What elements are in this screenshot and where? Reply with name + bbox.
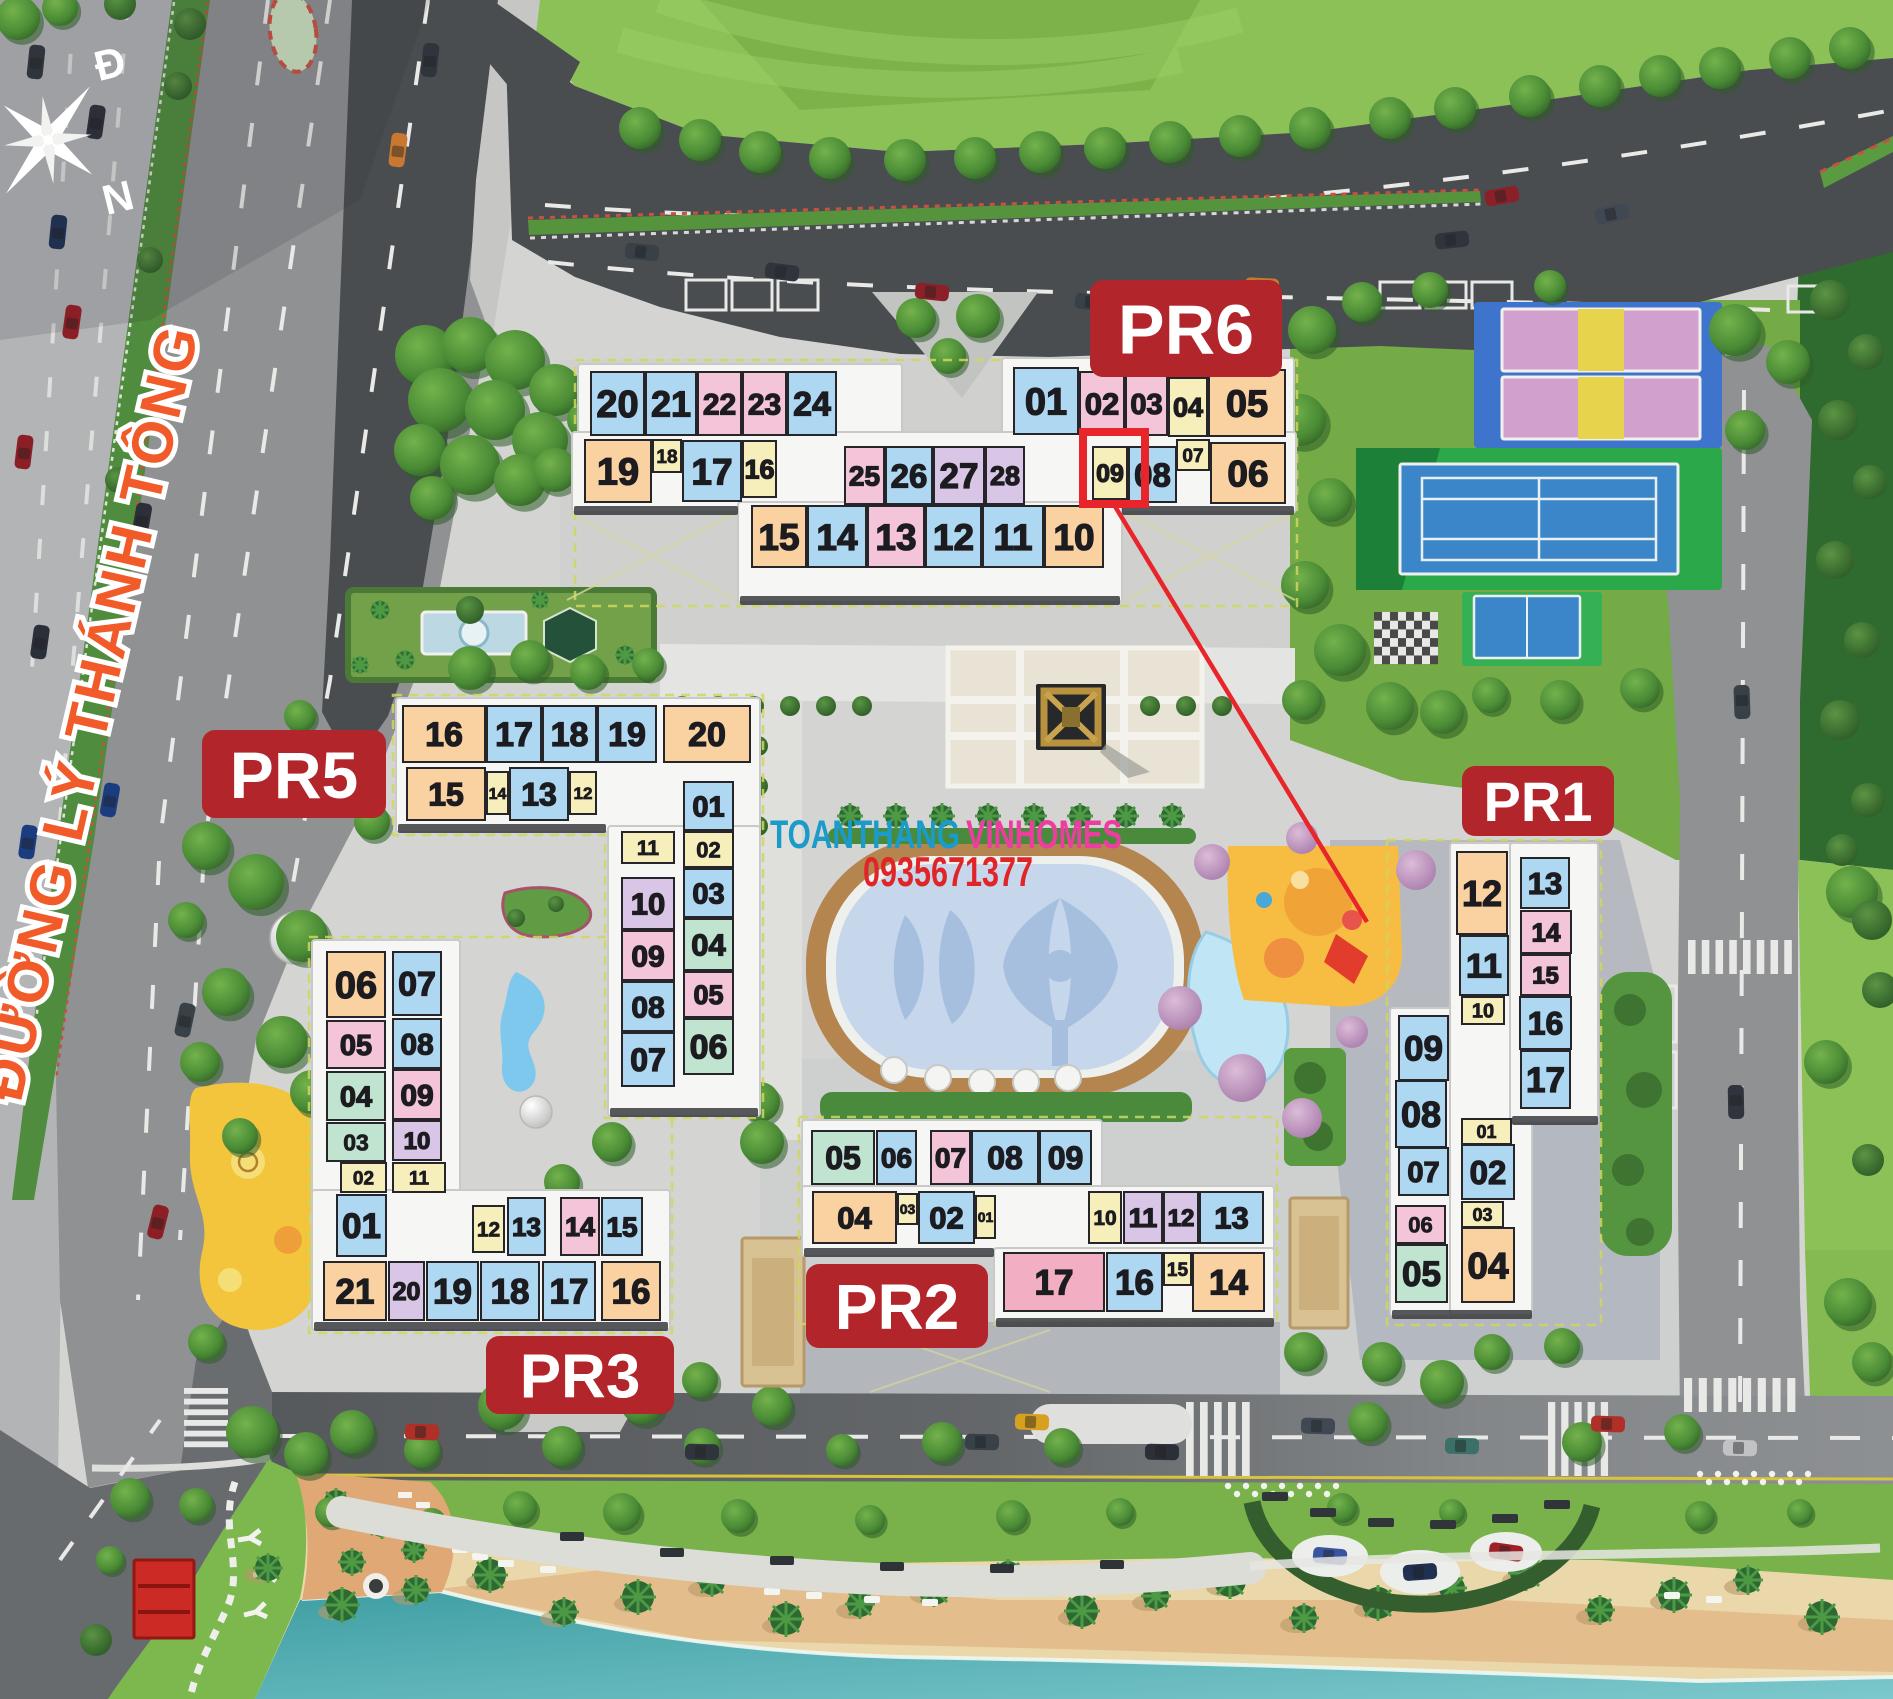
svg-text:12: 12	[574, 784, 593, 803]
svg-text:03: 03	[900, 1201, 916, 1217]
svg-text:13: 13	[521, 777, 557, 813]
svg-text:19: 19	[608, 716, 646, 754]
svg-text:28: 28	[990, 461, 1020, 491]
svg-text:06: 06	[1227, 453, 1268, 494]
svg-text:PR6: PR6	[1118, 291, 1254, 369]
svg-text:14: 14	[816, 517, 858, 558]
svg-text:12: 12	[933, 517, 974, 558]
svg-text:15: 15	[606, 1212, 637, 1243]
svg-text:01: 01	[692, 791, 724, 823]
svg-text:09: 09	[1404, 1030, 1443, 1069]
svg-text:04: 04	[1173, 393, 1203, 423]
svg-text:01: 01	[1476, 1122, 1496, 1142]
svg-text:07: 07	[398, 966, 436, 1004]
svg-text:05: 05	[340, 1030, 372, 1062]
svg-text:10: 10	[1093, 1207, 1116, 1230]
svg-text:14: 14	[1209, 1264, 1248, 1303]
svg-text:05: 05	[693, 980, 723, 1010]
svg-text:21: 21	[651, 383, 691, 424]
svg-text:PR2: PR2	[835, 1271, 960, 1343]
svg-text:01: 01	[978, 1209, 994, 1225]
svg-text:03: 03	[1472, 1205, 1492, 1225]
svg-text:11: 11	[1466, 948, 1502, 986]
svg-text:25: 25	[849, 461, 880, 492]
svg-text:18: 18	[551, 716, 589, 754]
svg-text:04: 04	[691, 928, 726, 963]
svg-text:16: 16	[1528, 1006, 1564, 1042]
svg-text:03: 03	[692, 878, 724, 910]
svg-text:09: 09	[400, 1079, 433, 1112]
svg-text:08: 08	[400, 1028, 433, 1061]
svg-text:13: 13	[1528, 866, 1562, 901]
svg-text:09: 09	[631, 940, 664, 973]
svg-text:14: 14	[489, 786, 507, 803]
svg-text:01: 01	[1025, 382, 1067, 424]
svg-text:18: 18	[656, 447, 677, 468]
svg-text:0935671377: 0935671377	[863, 848, 1033, 895]
svg-text:17: 17	[1035, 1264, 1074, 1303]
svg-text:PR3: PR3	[520, 1342, 641, 1411]
svg-text:10: 10	[631, 887, 665, 922]
svg-text:16: 16	[612, 1273, 651, 1312]
svg-text:16: 16	[425, 716, 463, 754]
svg-text:12: 12	[1168, 1205, 1195, 1232]
svg-text:15: 15	[1167, 1260, 1189, 1281]
svg-text:07: 07	[630, 1042, 666, 1078]
svg-text:08: 08	[1401, 1094, 1441, 1135]
svg-text:24: 24	[793, 386, 831, 424]
svg-text:08: 08	[1134, 456, 1171, 493]
svg-text:16: 16	[744, 455, 774, 485]
svg-text:21: 21	[336, 1273, 375, 1312]
svg-text:05: 05	[1226, 384, 1268, 426]
svg-text:03: 03	[343, 1129, 369, 1155]
svg-text:11: 11	[637, 837, 660, 860]
svg-text:PR1: PR1	[1484, 770, 1593, 833]
svg-text:17: 17	[1526, 1061, 1565, 1100]
svg-text:05: 05	[825, 1140, 861, 1176]
svg-text:02: 02	[929, 1201, 963, 1236]
svg-text:19: 19	[433, 1273, 472, 1312]
svg-text:06: 06	[335, 965, 377, 1007]
svg-text:12: 12	[477, 1219, 500, 1242]
svg-text:23: 23	[748, 388, 781, 421]
svg-text:07: 07	[935, 1143, 966, 1174]
svg-text:20: 20	[596, 384, 638, 426]
svg-text:02: 02	[696, 837, 720, 862]
svg-text:20: 20	[688, 716, 726, 754]
svg-text:17: 17	[495, 716, 533, 754]
svg-text:10: 10	[1053, 517, 1094, 558]
svg-text:18: 18	[491, 1273, 530, 1312]
svg-text:26: 26	[891, 457, 928, 494]
svg-text:01: 01	[342, 1207, 381, 1246]
svg-text:16: 16	[1115, 1264, 1154, 1303]
svg-text:17: 17	[691, 451, 732, 492]
svg-text:05: 05	[1402, 1255, 1441, 1294]
svg-text:03: 03	[1130, 389, 1162, 421]
svg-text:22: 22	[703, 388, 736, 421]
svg-text:15: 15	[758, 517, 799, 558]
svg-text:19: 19	[597, 452, 639, 494]
svg-text:14: 14	[1532, 917, 1561, 947]
svg-text:04: 04	[340, 1081, 372, 1113]
svg-text:27: 27	[940, 457, 979, 496]
svg-text:17: 17	[550, 1273, 589, 1312]
svg-text:07: 07	[1407, 1157, 1439, 1189]
svg-text:02: 02	[1085, 387, 1119, 422]
svg-text:08: 08	[631, 991, 664, 1024]
svg-text:20: 20	[393, 1278, 421, 1306]
svg-text:07: 07	[1182, 446, 1203, 467]
svg-text:06: 06	[881, 1143, 912, 1174]
svg-text:13: 13	[1214, 1201, 1248, 1236]
svg-text:14: 14	[565, 1212, 595, 1242]
svg-text:13: 13	[512, 1212, 541, 1242]
svg-text:04: 04	[1467, 1245, 1509, 1286]
svg-text:PR5: PR5	[230, 738, 358, 812]
svg-text:02: 02	[353, 1168, 374, 1189]
svg-text:02: 02	[1470, 1154, 1507, 1191]
svg-text:15: 15	[428, 777, 464, 813]
svg-text:09: 09	[1048, 1140, 1084, 1176]
svg-text:09: 09	[1096, 460, 1124, 488]
svg-text:11: 11	[1129, 1203, 1158, 1233]
svg-text:08: 08	[987, 1140, 1023, 1176]
svg-text:11: 11	[993, 517, 1032, 558]
svg-text:12: 12	[1462, 873, 1502, 914]
svg-text:06: 06	[1408, 1212, 1432, 1237]
svg-text:06: 06	[690, 1029, 728, 1067]
svg-text:10: 10	[1472, 1001, 1494, 1023]
svg-text:11: 11	[409, 1168, 430, 1189]
svg-text:04: 04	[837, 1201, 872, 1236]
svg-text:10: 10	[404, 1128, 431, 1155]
svg-text:15: 15	[1532, 963, 1559, 990]
svg-text:13: 13	[875, 517, 916, 558]
